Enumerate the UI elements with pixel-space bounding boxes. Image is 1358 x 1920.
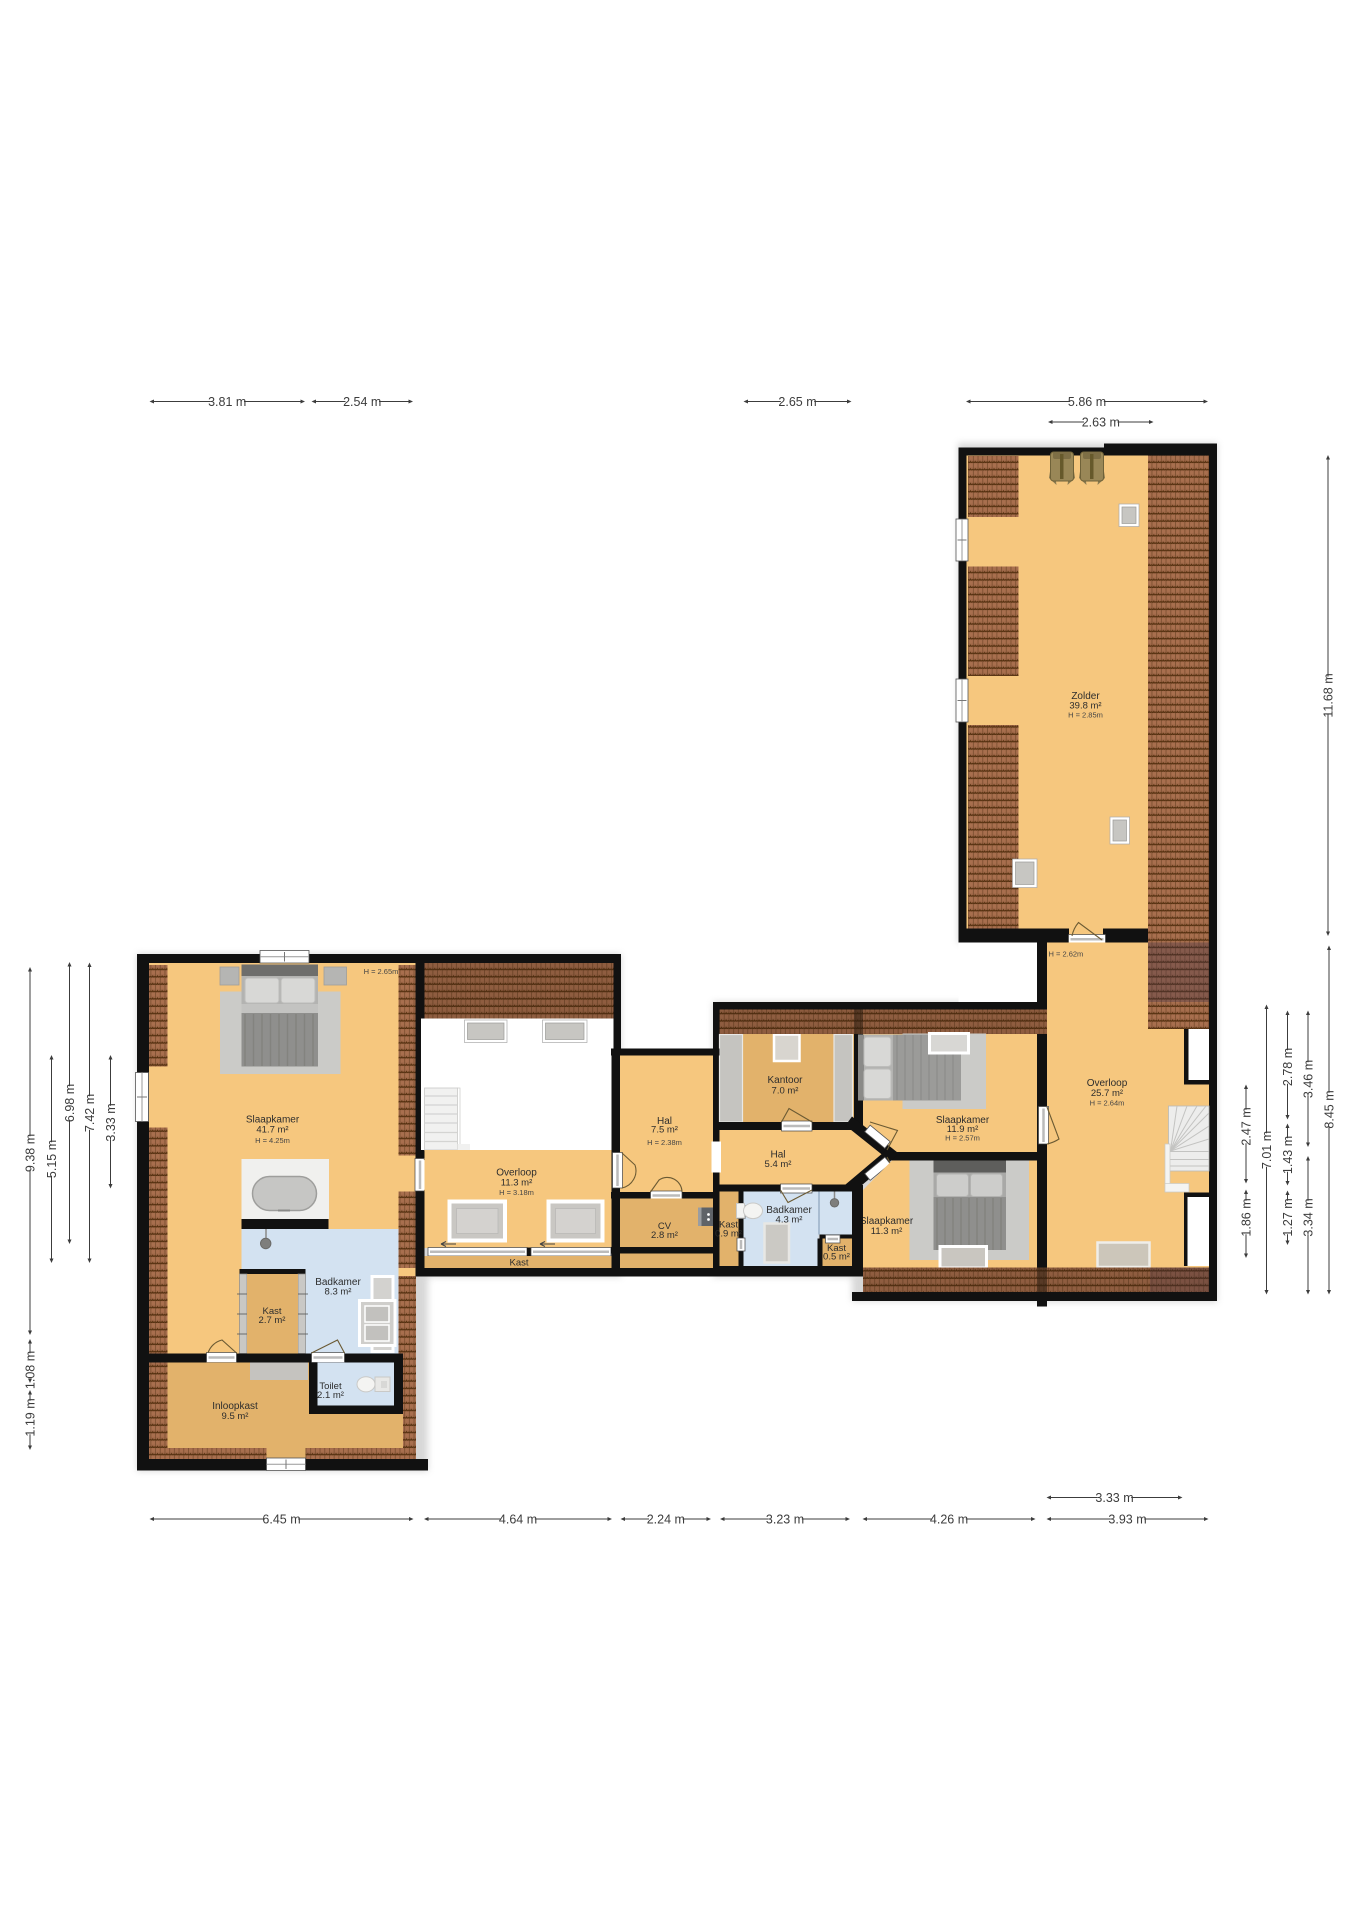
svg-text:6.45 m: 6.45 m xyxy=(262,1512,300,1526)
svg-text:9.38 m: 9.38 m xyxy=(23,1134,37,1172)
svg-text:2.8 m²: 2.8 m² xyxy=(651,1230,678,1241)
svg-text:11.3 m²: 11.3 m² xyxy=(871,1226,903,1237)
svg-text:0.5 m²: 0.5 m² xyxy=(823,1252,850,1263)
svg-text:6.98 m: 6.98 m xyxy=(63,1084,77,1122)
svg-text:11.3 m²: 11.3 m² xyxy=(501,1178,533,1189)
svg-text:1.27 m: 1.27 m xyxy=(1281,1198,1295,1236)
svg-text:2.1 m²: 2.1 m² xyxy=(317,1390,344,1401)
svg-text:2.78 m: 2.78 m xyxy=(1281,1048,1295,1086)
svg-text:H = 2.85m: H = 2.85m xyxy=(1068,711,1103,720)
svg-text:7.42 m: 7.42 m xyxy=(83,1094,97,1132)
svg-text:11.68 m: 11.68 m xyxy=(1321,673,1335,717)
svg-text:Kast: Kast xyxy=(509,1258,528,1269)
svg-text:9.5 m²: 9.5 m² xyxy=(222,1411,249,1422)
svg-text:0.9 m²: 0.9 m² xyxy=(715,1229,742,1240)
svg-text:8.45 m: 8.45 m xyxy=(1322,1090,1336,1128)
svg-text:5.4 m²: 5.4 m² xyxy=(765,1159,792,1170)
svg-text:3.33 m: 3.33 m xyxy=(104,1103,118,1141)
svg-text:25.7 m²: 25.7 m² xyxy=(1091,1088,1123,1099)
svg-text:H = 2.64m: H = 2.64m xyxy=(1090,1099,1125,1108)
svg-text:3.34 m: 3.34 m xyxy=(1301,1198,1315,1236)
svg-text:H = 2.62m: H = 2.62m xyxy=(1049,950,1084,959)
svg-text:H = 4.25m: H = 4.25m xyxy=(255,1136,290,1145)
svg-text:1.08 m: 1.08 m xyxy=(23,1351,37,1389)
svg-text:3.46 m: 3.46 m xyxy=(1301,1060,1315,1098)
svg-text:4.26 m: 4.26 m xyxy=(930,1512,968,1526)
svg-text:41.7 m²: 41.7 m² xyxy=(256,1125,288,1136)
svg-text:1.19 m: 1.19 m xyxy=(23,1398,37,1436)
svg-text:H = 2.38m: H = 2.38m xyxy=(647,1138,682,1147)
svg-text:4.3 m²: 4.3 m² xyxy=(776,1215,803,1226)
svg-text:Kantoor: Kantoor xyxy=(767,1075,803,1086)
svg-text:5.86 m: 5.86 m xyxy=(1068,395,1106,409)
svg-text:7.01 m: 7.01 m xyxy=(1260,1131,1274,1169)
svg-text:H = 2.65m: H = 2.65m xyxy=(364,967,399,976)
svg-text:3.23 m: 3.23 m xyxy=(766,1512,804,1526)
svg-text:7.0 m²: 7.0 m² xyxy=(772,1086,799,1097)
svg-text:2.47 m: 2.47 m xyxy=(1239,1107,1253,1145)
svg-text:2.24 m: 2.24 m xyxy=(647,1512,685,1526)
svg-text:H = 2.57m: H = 2.57m xyxy=(945,1134,980,1143)
svg-text:H = 3.18m: H = 3.18m xyxy=(499,1188,534,1197)
svg-text:3.93 m: 3.93 m xyxy=(1108,1512,1146,1526)
svg-text:2.7 m²: 2.7 m² xyxy=(259,1315,286,1326)
svg-text:4.64 m: 4.64 m xyxy=(499,1512,537,1526)
svg-text:7.5 m²: 7.5 m² xyxy=(651,1125,678,1136)
svg-text:2.54 m: 2.54 m xyxy=(343,395,381,409)
svg-text:3.81 m: 3.81 m xyxy=(208,395,246,409)
svg-text:8.3 m²: 8.3 m² xyxy=(325,1287,352,1298)
svg-text:2.63 m: 2.63 m xyxy=(1082,415,1120,429)
svg-text:2.65 m: 2.65 m xyxy=(778,395,816,409)
svg-text:1.86 m: 1.86 m xyxy=(1239,1198,1253,1236)
svg-text:1.43 m: 1.43 m xyxy=(1281,1136,1295,1174)
svg-text:5.15 m: 5.15 m xyxy=(45,1140,59,1178)
svg-text:3.33 m: 3.33 m xyxy=(1095,1491,1133,1505)
